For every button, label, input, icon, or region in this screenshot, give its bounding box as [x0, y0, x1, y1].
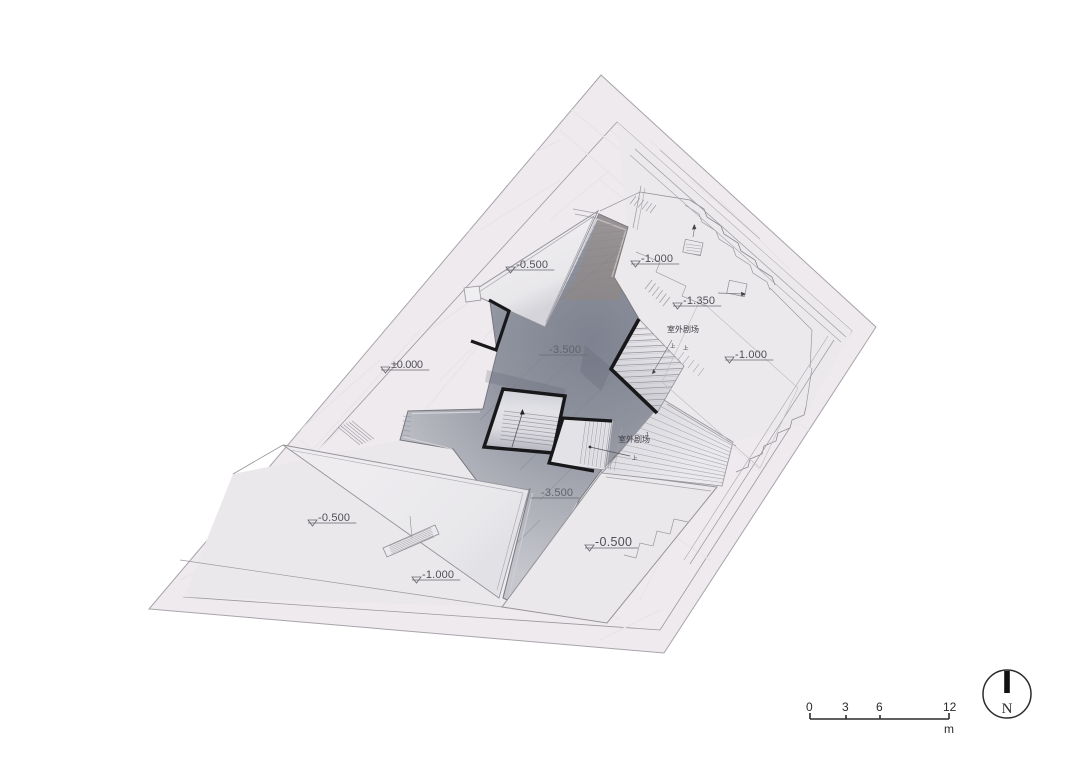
svg-text:-1.350: -1.350 — [683, 295, 715, 307]
svg-text:3: 3 — [842, 700, 849, 714]
svg-text:±0.000: ±0.000 — [391, 359, 423, 371]
svg-text:1: 1 — [646, 432, 649, 438]
svg-text:6: 6 — [876, 700, 883, 714]
svg-text:上: 上 — [683, 344, 689, 352]
svg-text:12: 12 — [943, 700, 957, 714]
svg-text:0: 0 — [806, 700, 813, 714]
svg-text:-1.000: -1.000 — [641, 253, 673, 265]
svg-text:-0.500: -0.500 — [516, 259, 548, 271]
svg-text:m: m — [944, 722, 954, 736]
svg-text:-0.500: -0.500 — [318, 512, 350, 524]
svg-text:-1.000: -1.000 — [735, 349, 767, 361]
svg-text:-0.500: -0.500 — [595, 535, 632, 549]
svg-text:N: N — [1002, 701, 1013, 717]
svg-text:上: 上 — [670, 342, 676, 350]
svg-text:室外剧场: 室外剧场 — [667, 324, 699, 334]
svg-text:-1.000: -1.000 — [422, 569, 454, 581]
svg-text:-3.500: -3.500 — [541, 487, 573, 499]
svg-text:-3.500: -3.500 — [549, 344, 581, 356]
svg-text:上: 上 — [632, 454, 638, 462]
